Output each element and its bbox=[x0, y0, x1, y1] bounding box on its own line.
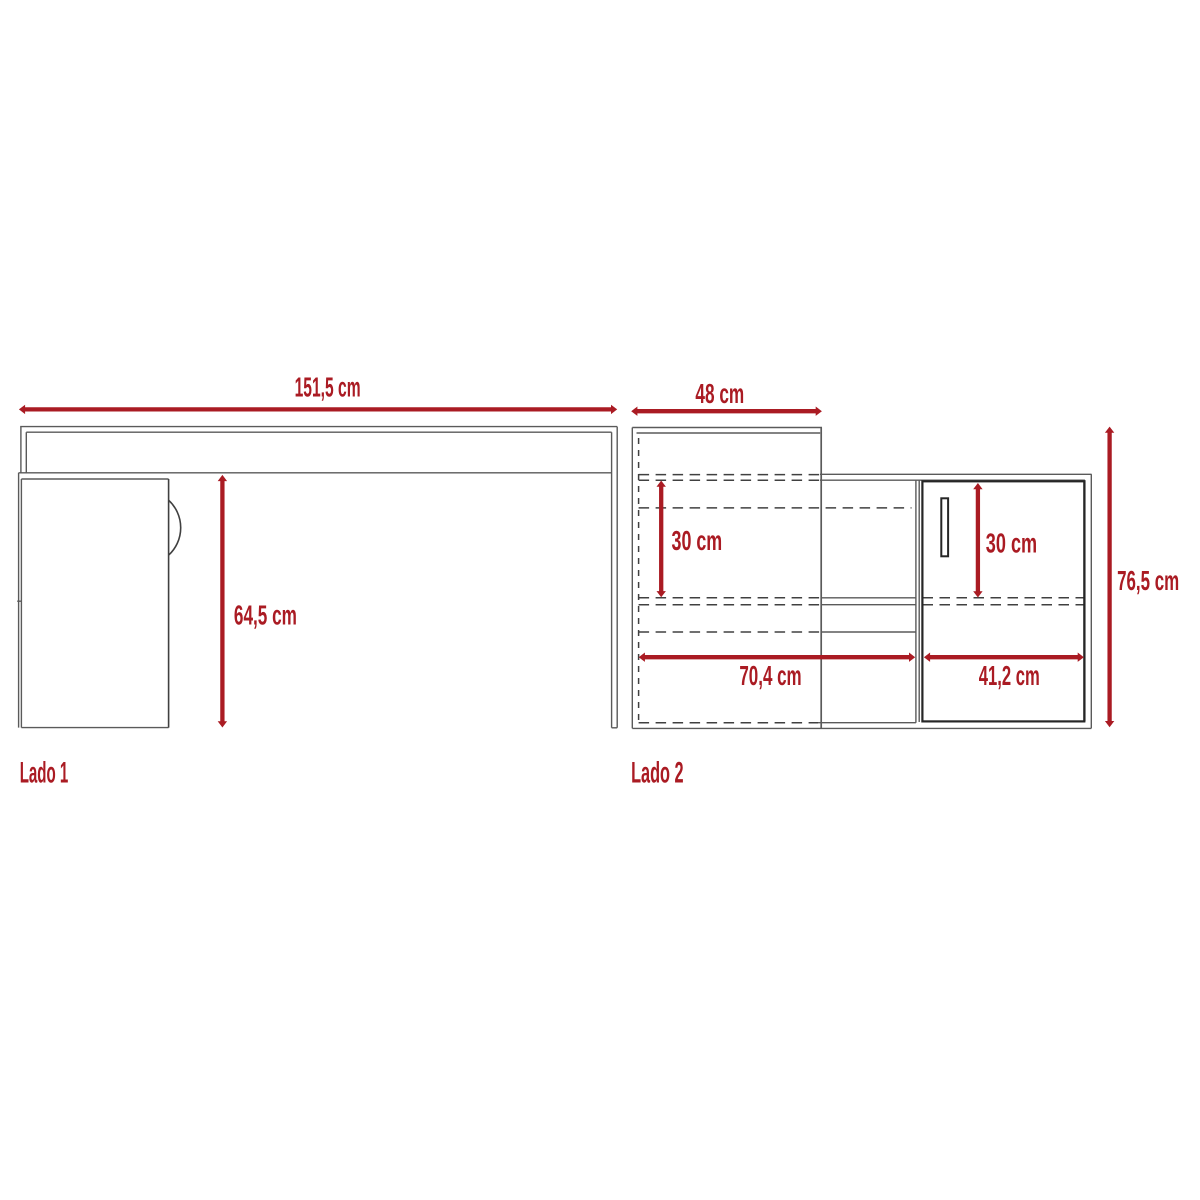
svg-text:151,5 cm: 151,5 cm bbox=[295, 372, 361, 403]
svg-text:Lado 2: Lado 2 bbox=[631, 757, 684, 790]
svg-text:48 cm: 48 cm bbox=[695, 378, 744, 409]
svg-text:Lado 1: Lado 1 bbox=[20, 757, 69, 790]
svg-text:30 cm: 30 cm bbox=[672, 525, 723, 556]
svg-text:30 cm: 30 cm bbox=[986, 527, 1037, 558]
svg-text:64,5 cm: 64,5 cm bbox=[234, 599, 297, 630]
svg-text:70,4 cm: 70,4 cm bbox=[739, 660, 801, 691]
svg-text:41,2 cm: 41,2 cm bbox=[979, 660, 1040, 691]
svg-text:76,5 cm: 76,5 cm bbox=[1117, 565, 1179, 596]
